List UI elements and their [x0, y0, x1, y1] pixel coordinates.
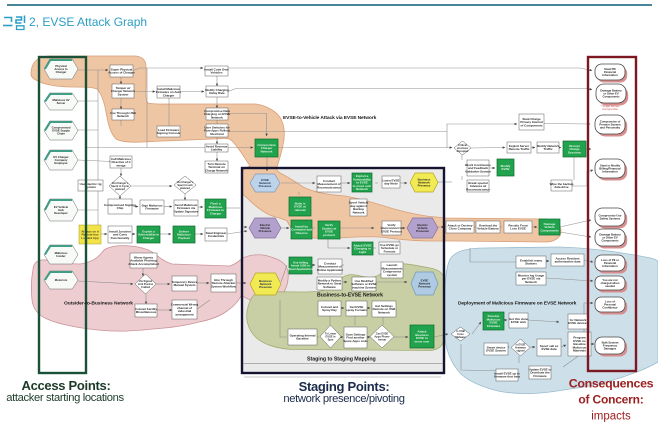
- svg-text:Results FrontLose EVSE: Results FrontLose EVSE: [508, 223, 527, 230]
- svg-text:EVSE-to-Vehicle Attack via EVS: EVSE-to-Vehicle Attack via EVSE Network: [283, 115, 377, 121]
- svg-text:of Concern:: of Concern:: [578, 393, 643, 407]
- svg-text:Get this doneEVSE stub: Get this doneEVSE stub: [509, 317, 528, 324]
- svg-text:Temporary DeviceManual System: Temporary DeviceManual System: [172, 280, 198, 287]
- svg-text:Staging Points:: Staging Points:: [299, 379, 390, 394]
- svg-text:Overload theVehicle Battery: Overload theVehicle Battery: [477, 223, 499, 230]
- svg-text:Use ModifiedSoftware or EVSEma: Use ModifiedSoftware or EVSEmachine Syst…: [351, 279, 376, 290]
- svg-text:Access Residentauthorization d: Access Residentauthorization data: [555, 256, 581, 263]
- svg-text:BusinessNetworkPresence: BusinessNetworkPresence: [259, 279, 272, 289]
- svg-text:attacker starting locations: attacker starting locations: [6, 392, 124, 404]
- svg-text:Avoid MaliciousFirmware viaUpd: Avoid MaliciousFirmware viaUpdate Signat…: [174, 203, 199, 214]
- svg-text:Colonel andSpray Day: Colonel andSpray Day: [321, 305, 338, 312]
- svg-text:DisruptChargeSessions: DisruptChargeSessions: [568, 144, 582, 155]
- svg-text:2, EVSE Attack Graph: 2, EVSE Attack Graph: [29, 15, 147, 29]
- svg-text:Attack or DestroyClose Company: Attack or DestroyClose Company: [447, 223, 472, 230]
- svg-text:Access Points:: Access Points:: [21, 378, 110, 393]
- svg-text:Exploit ServerRemote Traffic: Exploit ServerRemote Traffic: [509, 144, 530, 151]
- svg-text:Consequences: Consequences: [569, 377, 654, 391]
- svg-text:Block Continuousand FeedbackVa: Block Continuousand FeedbackValidation S…: [465, 163, 491, 174]
- svg-text:for NetworkEVSE devices: for NetworkEVSE devices: [568, 318, 588, 325]
- svg-text:Hire ThroughRemote AttackerSys: Hire ThroughRemote AttackerSystem Workfl…: [211, 278, 237, 289]
- svg-text:Turn RemoteTerminal onCharge N: Turn RemoteTerminal onCharge Network: [205, 162, 228, 173]
- svg-text:PhysicalAccess toCharger: PhysicalAccess toCharger: [54, 64, 68, 74]
- svg-text:Super PhysicalAccess of Charge: Super PhysicalAccess of Charger: [108, 67, 135, 74]
- svg-text:Learn EVSEday Node: Learn EVSEday Node: [382, 178, 399, 185]
- svg-text:Staging to Staging Mapping: Staging to Staging Mapping: [307, 357, 376, 363]
- svg-text:ModifyEVSE: ModifyEVSE: [501, 164, 511, 171]
- svg-text:DevelopMaliciousEVSEFirmware: DevelopMaliciousEVSEFirmware: [487, 314, 501, 328]
- svg-text:Compromise ofPremier Systemand: Compromise ofPremier Systemand Personalt…: [599, 120, 621, 130]
- svg-text:Outsider-to-Business Network: Outsider-to-Business Network: [64, 301, 133, 307]
- svg-text:Scan SettingsFind anotherSpare: Scan SettingsFind anotherSpare Apps code: [343, 332, 368, 343]
- svg-text:Smart deviceEVSE System: Smart deviceEVSE System: [486, 345, 506, 352]
- svg-text:Load FirmwareSigning Console: Load FirmwareSigning Console: [157, 128, 181, 135]
- svg-text:Compromise UseSafety Systems: Compromise UseSafety Systems: [598, 214, 621, 221]
- svg-text:Install EVSE up tofirmware tha: Install EVSE up tofirmware that beta: [494, 371, 520, 378]
- svg-text:ProgramEVSE noBaselineMaliciou: ProgramEVSE noBaselineMaliciousMaterials: [573, 336, 587, 353]
- svg-text:Steal ChargePrivacy Internalof: Steal ChargePrivacy Internalof Component…: [520, 117, 543, 128]
- svg-text:network presence/pivoting: network presence/pivoting: [283, 393, 404, 405]
- svg-text:Spoof sell asEVSE data: Spoof sell asEVSE data: [540, 344, 559, 351]
- svg-text:ElectricVehiclePresence: ElectricVehiclePresence: [416, 223, 429, 233]
- svg-text:Always on itRemote hasLoaded A: Always on itRemote hasLoaded App: [81, 229, 99, 240]
- svg-text:EV ChargerCompanyEmployee: EV ChargerCompanyEmployee: [53, 155, 69, 165]
- svg-text:Deployment of Malicious Firmwa: Deployment of Malicious Firmware on EVSE…: [458, 301, 577, 307]
- svg-text:Motorists: Motorists: [55, 278, 68, 282]
- svg-text:* Single MoneyCompromise: * Single MoneyCompromise: [601, 104, 620, 111]
- svg-text:Steal EngineerCredentials: Steal EngineerCredentials: [206, 231, 228, 238]
- svg-text:Business-to-EVSE Network: Business-to-EVSE Network: [317, 293, 383, 299]
- svg-text:Steal PII/FinancialInformation: Steal PII/FinancialInformation: [602, 67, 618, 77]
- svg-text:BusinessNetworkPresence: BusinessNetworkPresence: [418, 177, 431, 187]
- svg-text:impacts: impacts: [591, 411, 631, 423]
- svg-text:Node isEVSE atrational: Node isEVSE atrational: [294, 201, 306, 212]
- svg-text:Colonel FacilityMiscellaneous: Colonel FacilityMiscellaneous: [135, 307, 158, 314]
- svg-text:Steal or ModifyBilling/Financi: Steal or ModifyBilling/FinancialInformat…: [599, 164, 621, 174]
- svg-text:ElectricVehiclePresence: ElectricVehiclePresence: [259, 223, 272, 233]
